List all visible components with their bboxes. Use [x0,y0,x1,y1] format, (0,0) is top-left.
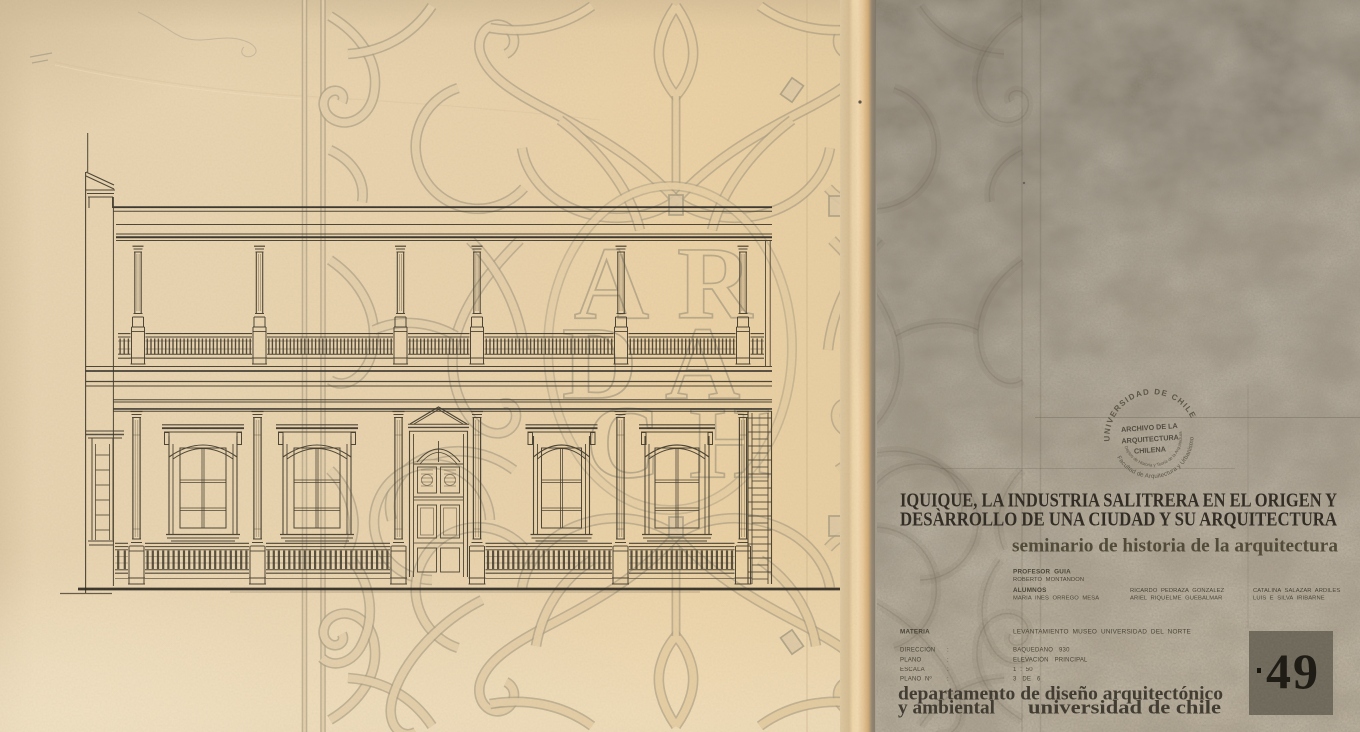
svg-text:DIRECCIÓN: DIRECCIÓN [900,647,935,654]
svg-text:seminario de historia de la ar: seminario de historia de la arquitectura [1012,537,1338,557]
svg-text:ELEVACIÓN PRINCIPAL: ELEVACIÓN PRINCIPAL [1013,657,1088,664]
svg-text:LEVANTAMIENTO MUSEO UNIVERSIDA: LEVANTAMIENTO MUSEO UNIVERSIDAD DEL NORT… [1013,629,1191,636]
svg-text:MATERIA: MATERIA [900,629,930,636]
svg-text:y ambiental: y ambiental [898,699,995,719]
svg-text:PLANO: PLANO [900,658,921,664]
svg-text:IQUIQUE, LA INDUSTRIA SALITR: IQUIQUE, LA INDUSTRIA SALITRERA EN EL OR… [900,491,1337,512]
svg-text:3 DE 6: 3 DE 6 [1013,677,1041,683]
svg-text:1 : 50: 1 : 50 [1013,667,1033,673]
svg-text:LUIS E SILVA IRIBARNE: LUIS E SILVA IRIBARNE [1253,596,1325,602]
svg-text:49: 49 [1266,643,1320,699]
svg-text:DESÀRROLLO DE UNA CIUDAD Y: DESÀRROLLO DE UNA CIUDAD Y SU ARQUITECTU… [900,509,1337,531]
svg-text:ARIEL RIQUELME GUEBALMAR: ARIEL RIQUELME GUEBALMAR [1130,596,1222,602]
svg-text:PROFESOR GUIA: PROFESOR GUIA [1013,569,1071,576]
svg-text:ROBERTO MONTANDON: ROBERTO MONTANDON [1013,577,1084,583]
svg-text:BAQUEDANO 930: BAQUEDANO 930 [1013,648,1070,654]
svg-text:MARIA INES ORREGO MESA: MARIA INES ORREGO MESA [1013,596,1099,602]
svg-text:universidad de chile: universidad de chile [1028,699,1221,719]
svg-text:PLANO Nº: PLANO Nº [900,676,933,683]
svg-text:ESCALA: ESCALA [900,667,925,673]
svg-text:RICARDO PEDRAZA GONZALEZ: RICARDO PEDRAZA GONZALEZ [1130,588,1225,594]
svg-text:CATALINA SALAZAR ARDILES: CATALINA SALAZAR ARDILES [1253,588,1340,594]
svg-text:ALUMNOS: ALUMNOS [1013,587,1047,594]
